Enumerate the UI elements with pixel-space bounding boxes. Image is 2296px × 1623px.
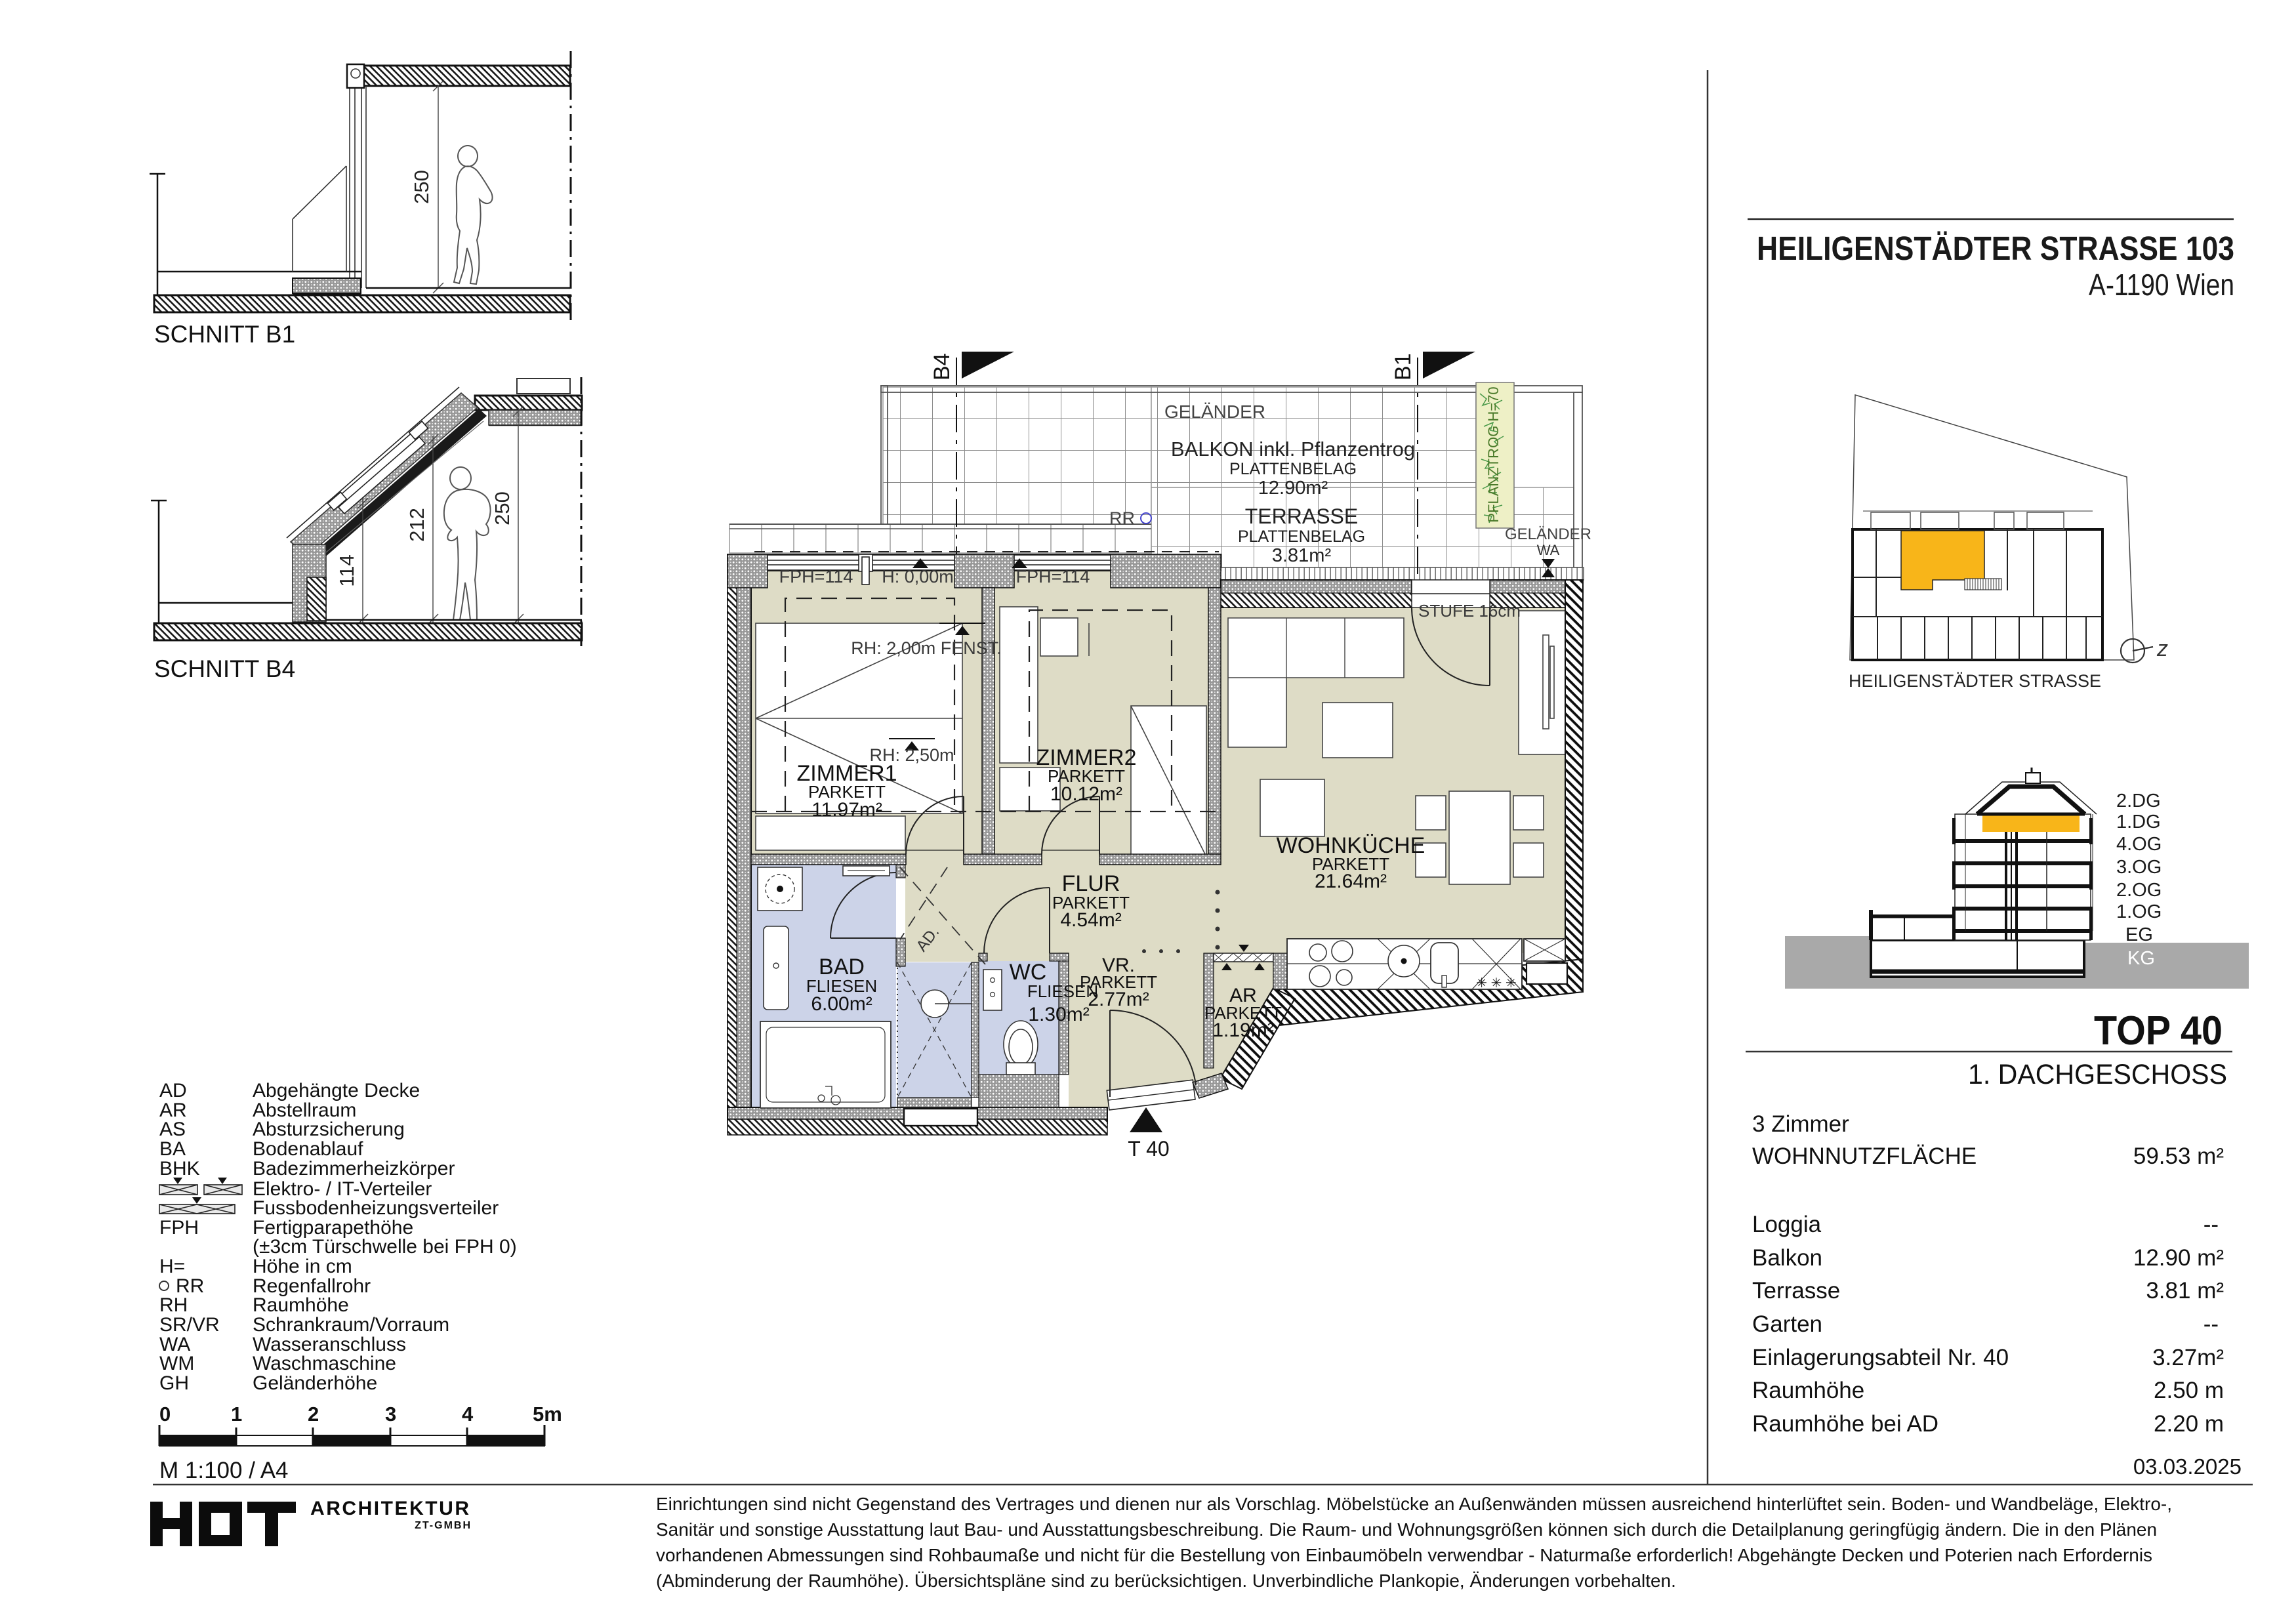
svg-text:2.20 m: 2.20 m: [2154, 1411, 2224, 1437]
svg-text:Schrankraum/Vorraum: Schrankraum/Vorraum: [253, 1314, 449, 1336]
svg-text:Loggia: Loggia: [1752, 1212, 1822, 1237]
svg-text:Raumhöhe: Raumhöhe: [1752, 1378, 1864, 1403]
svg-text:WM: WM: [159, 1353, 194, 1374]
svg-text:SCHNITT B1: SCHNITT B1: [154, 321, 295, 348]
svg-text:FPH: FPH: [159, 1217, 199, 1239]
svg-text:SCHNITT B4: SCHNITT B4: [154, 655, 295, 682]
svg-text:11.97m²: 11.97m²: [811, 799, 882, 821]
svg-text:Fussbodenheizungsverteiler: Fussbodenheizungsverteiler: [253, 1197, 499, 1219]
svg-text:AS: AS: [159, 1119, 186, 1140]
svg-text:59.53 m²: 59.53 m²: [2133, 1143, 2224, 1169]
svg-text:3.81m²: 3.81m²: [1272, 545, 1332, 566]
svg-text:3 Zimmer: 3 Zimmer: [1752, 1111, 1849, 1137]
svg-text:10.12m²: 10.12m²: [1050, 783, 1122, 805]
svg-text:--: --: [2204, 1212, 2219, 1237]
svg-text:TERRASSE: TERRASSE: [1245, 504, 1358, 528]
svg-text:BA: BA: [159, 1138, 186, 1160]
svg-text:(±3cm Türschwelle bei FPH 0): (±3cm Türschwelle bei FPH 0): [253, 1236, 517, 1258]
svg-text:Garten: Garten: [1752, 1311, 1822, 1337]
svg-text:2.50 m: 2.50 m: [2154, 1378, 2224, 1403]
svg-text:3.OG: 3.OG: [2116, 857, 2162, 878]
svg-text:Höhe in cm: Höhe in cm: [253, 1256, 352, 1277]
svg-text:1.OG: 1.OG: [2116, 901, 2162, 922]
svg-text:114: 114: [335, 554, 358, 586]
svg-text:2.77m²: 2.77m²: [1088, 989, 1149, 1010]
svg-text:RH: 2,00m FENST.: RH: 2,00m FENST.: [851, 638, 1002, 658]
svg-text:FPH=114: FPH=114: [779, 567, 853, 586]
svg-text:EG: EG: [2125, 924, 2153, 945]
svg-text:AD: AD: [159, 1080, 187, 1101]
svg-text:212: 212: [405, 508, 428, 542]
svg-text:21.64m²: 21.64m²: [1315, 871, 1387, 892]
svg-text:6.00m²: 6.00m²: [811, 993, 872, 1015]
svg-text:1: 1: [231, 1403, 242, 1426]
svg-text:250: 250: [410, 170, 433, 204]
svg-text:z: z: [2156, 636, 2168, 661]
svg-text:BHK: BHK: [159, 1158, 200, 1180]
svg-text:STUFE 16cm: STUFE 16cm: [1418, 601, 1521, 621]
svg-text:ARCHITEKTUR: ARCHITEKTUR: [310, 1498, 470, 1519]
svg-text:WA: WA: [1537, 542, 1560, 558]
svg-text:Waschmaschine: Waschmaschine: [253, 1353, 396, 1374]
svg-text:03.03.2025: 03.03.2025: [2133, 1454, 2242, 1479]
svg-text:5m: 5m: [533, 1403, 562, 1426]
svg-text:2: 2: [308, 1403, 319, 1426]
svg-text:12.90 m²: 12.90 m²: [2133, 1245, 2224, 1271]
svg-text:250: 250: [491, 491, 514, 525]
svg-text:(Abminderung der Raumhöhe). Üb: (Abminderung der Raumhöhe). Übersichtspl…: [656, 1571, 1676, 1591]
svg-text:2.DG: 2.DG: [2116, 791, 2161, 811]
svg-text:SR/VR: SR/VR: [159, 1314, 220, 1336]
svg-text:HEILIGENSTÄDTER STRASSE: HEILIGENSTÄDTER STRASSE: [1849, 671, 2101, 691]
svg-text:1.19m²: 1.19m²: [1212, 1019, 1273, 1041]
svg-text:1. DACHGESCHOSS: 1. DACHGESCHOSS: [1968, 1059, 2227, 1090]
svg-text:Balkon: Balkon: [1752, 1245, 1822, 1271]
svg-text:Raumhöhe: Raumhöhe: [253, 1294, 349, 1316]
svg-text:PLATTENBELAG: PLATTENBELAG: [1238, 527, 1365, 546]
svg-text:Sanitär und sonstige Ausstattu: Sanitär und sonstige Ausstattung laut Ba…: [656, 1519, 2157, 1540]
svg-text:4.OG: 4.OG: [2116, 834, 2162, 855]
svg-text:Badezimmerheizkörper: Badezimmerheizkörper: [253, 1158, 455, 1180]
svg-text:H=: H=: [159, 1256, 185, 1277]
svg-text:GELÄNDER: GELÄNDER: [1164, 401, 1265, 422]
svg-text:HEILIGENSTÄDTER STRASSE 103: HEILIGENSTÄDTER STRASSE 103: [1757, 230, 2234, 267]
svg-text:0: 0: [159, 1403, 171, 1426]
svg-text:T 40: T 40: [1128, 1137, 1169, 1161]
svg-text:FPH=114: FPH=114: [1016, 567, 1090, 586]
svg-text:3: 3: [385, 1403, 396, 1426]
svg-text:H: 0,00m: H: 0,00m: [882, 567, 954, 586]
svg-text:Geländerhöhe: Geländerhöhe: [253, 1372, 377, 1394]
svg-text:WOHNNUTZFLÄCHE: WOHNNUTZFLÄCHE: [1752, 1143, 1977, 1169]
svg-text:3.81 m²: 3.81 m²: [2146, 1278, 2224, 1304]
svg-text:Terrasse: Terrasse: [1752, 1278, 1840, 1304]
svg-text:KG: KG: [2127, 948, 2155, 969]
svg-text:12.90m²: 12.90m²: [1258, 478, 1328, 499]
svg-text:A-1190 Wien: A-1190 Wien: [2089, 268, 2234, 302]
svg-text:4: 4: [462, 1403, 474, 1426]
svg-text:3.27m²: 3.27m²: [2152, 1345, 2224, 1370]
svg-text:ZT-GMBH: ZT-GMBH: [415, 1520, 472, 1531]
svg-text:2.OG: 2.OG: [2116, 880, 2162, 901]
svg-text:Raumhöhe bei AD: Raumhöhe bei AD: [1752, 1411, 1938, 1437]
svg-text:PFLANZTROG H=70: PFLANZTROG H=70: [1485, 386, 1502, 522]
svg-text:Absturzsicherung: Absturzsicherung: [253, 1119, 405, 1140]
svg-text:RR: RR: [1109, 508, 1135, 528]
svg-text:Einrichtungen sind nicht Gegen: Einrichtungen sind nicht Gegenstand des …: [656, 1494, 2172, 1514]
svg-text:B1: B1: [1391, 353, 1416, 380]
svg-text:GELÄNDER: GELÄNDER: [1505, 525, 1591, 543]
svg-text:TOP 40: TOP 40: [2094, 1008, 2223, 1054]
svg-text:B4: B4: [930, 353, 954, 380]
svg-text:vorhandenen Abmessungen sind R: vorhandenen Abmessungen sind Rohbaumaße …: [656, 1545, 2152, 1565]
svg-text:PLATTENBELAG: PLATTENBELAG: [1229, 460, 1357, 478]
svg-text:RH: RH: [159, 1294, 188, 1316]
svg-text:1.30m²: 1.30m²: [1028, 1004, 1089, 1025]
svg-text:--: --: [2204, 1311, 2219, 1337]
svg-text:BALKON inkl. Pflanzentrog: BALKON inkl. Pflanzentrog: [1171, 438, 1415, 461]
svg-text:1.DG: 1.DG: [2116, 811, 2161, 832]
svg-text:Einlagerungsabteil Nr. 40: Einlagerungsabteil Nr. 40: [1752, 1345, 2009, 1370]
svg-text:✳ ✳ ✳: ✳ ✳ ✳: [1476, 976, 1516, 991]
svg-text:Abgehängte Decke: Abgehängte Decke: [253, 1080, 420, 1101]
svg-text:M 1:100 / A4: M 1:100 / A4: [159, 1458, 289, 1483]
svg-text:GH: GH: [159, 1372, 189, 1394]
svg-text:4.54m²: 4.54m²: [1060, 909, 1121, 931]
svg-text:Bodenablauf: Bodenablauf: [253, 1138, 363, 1160]
